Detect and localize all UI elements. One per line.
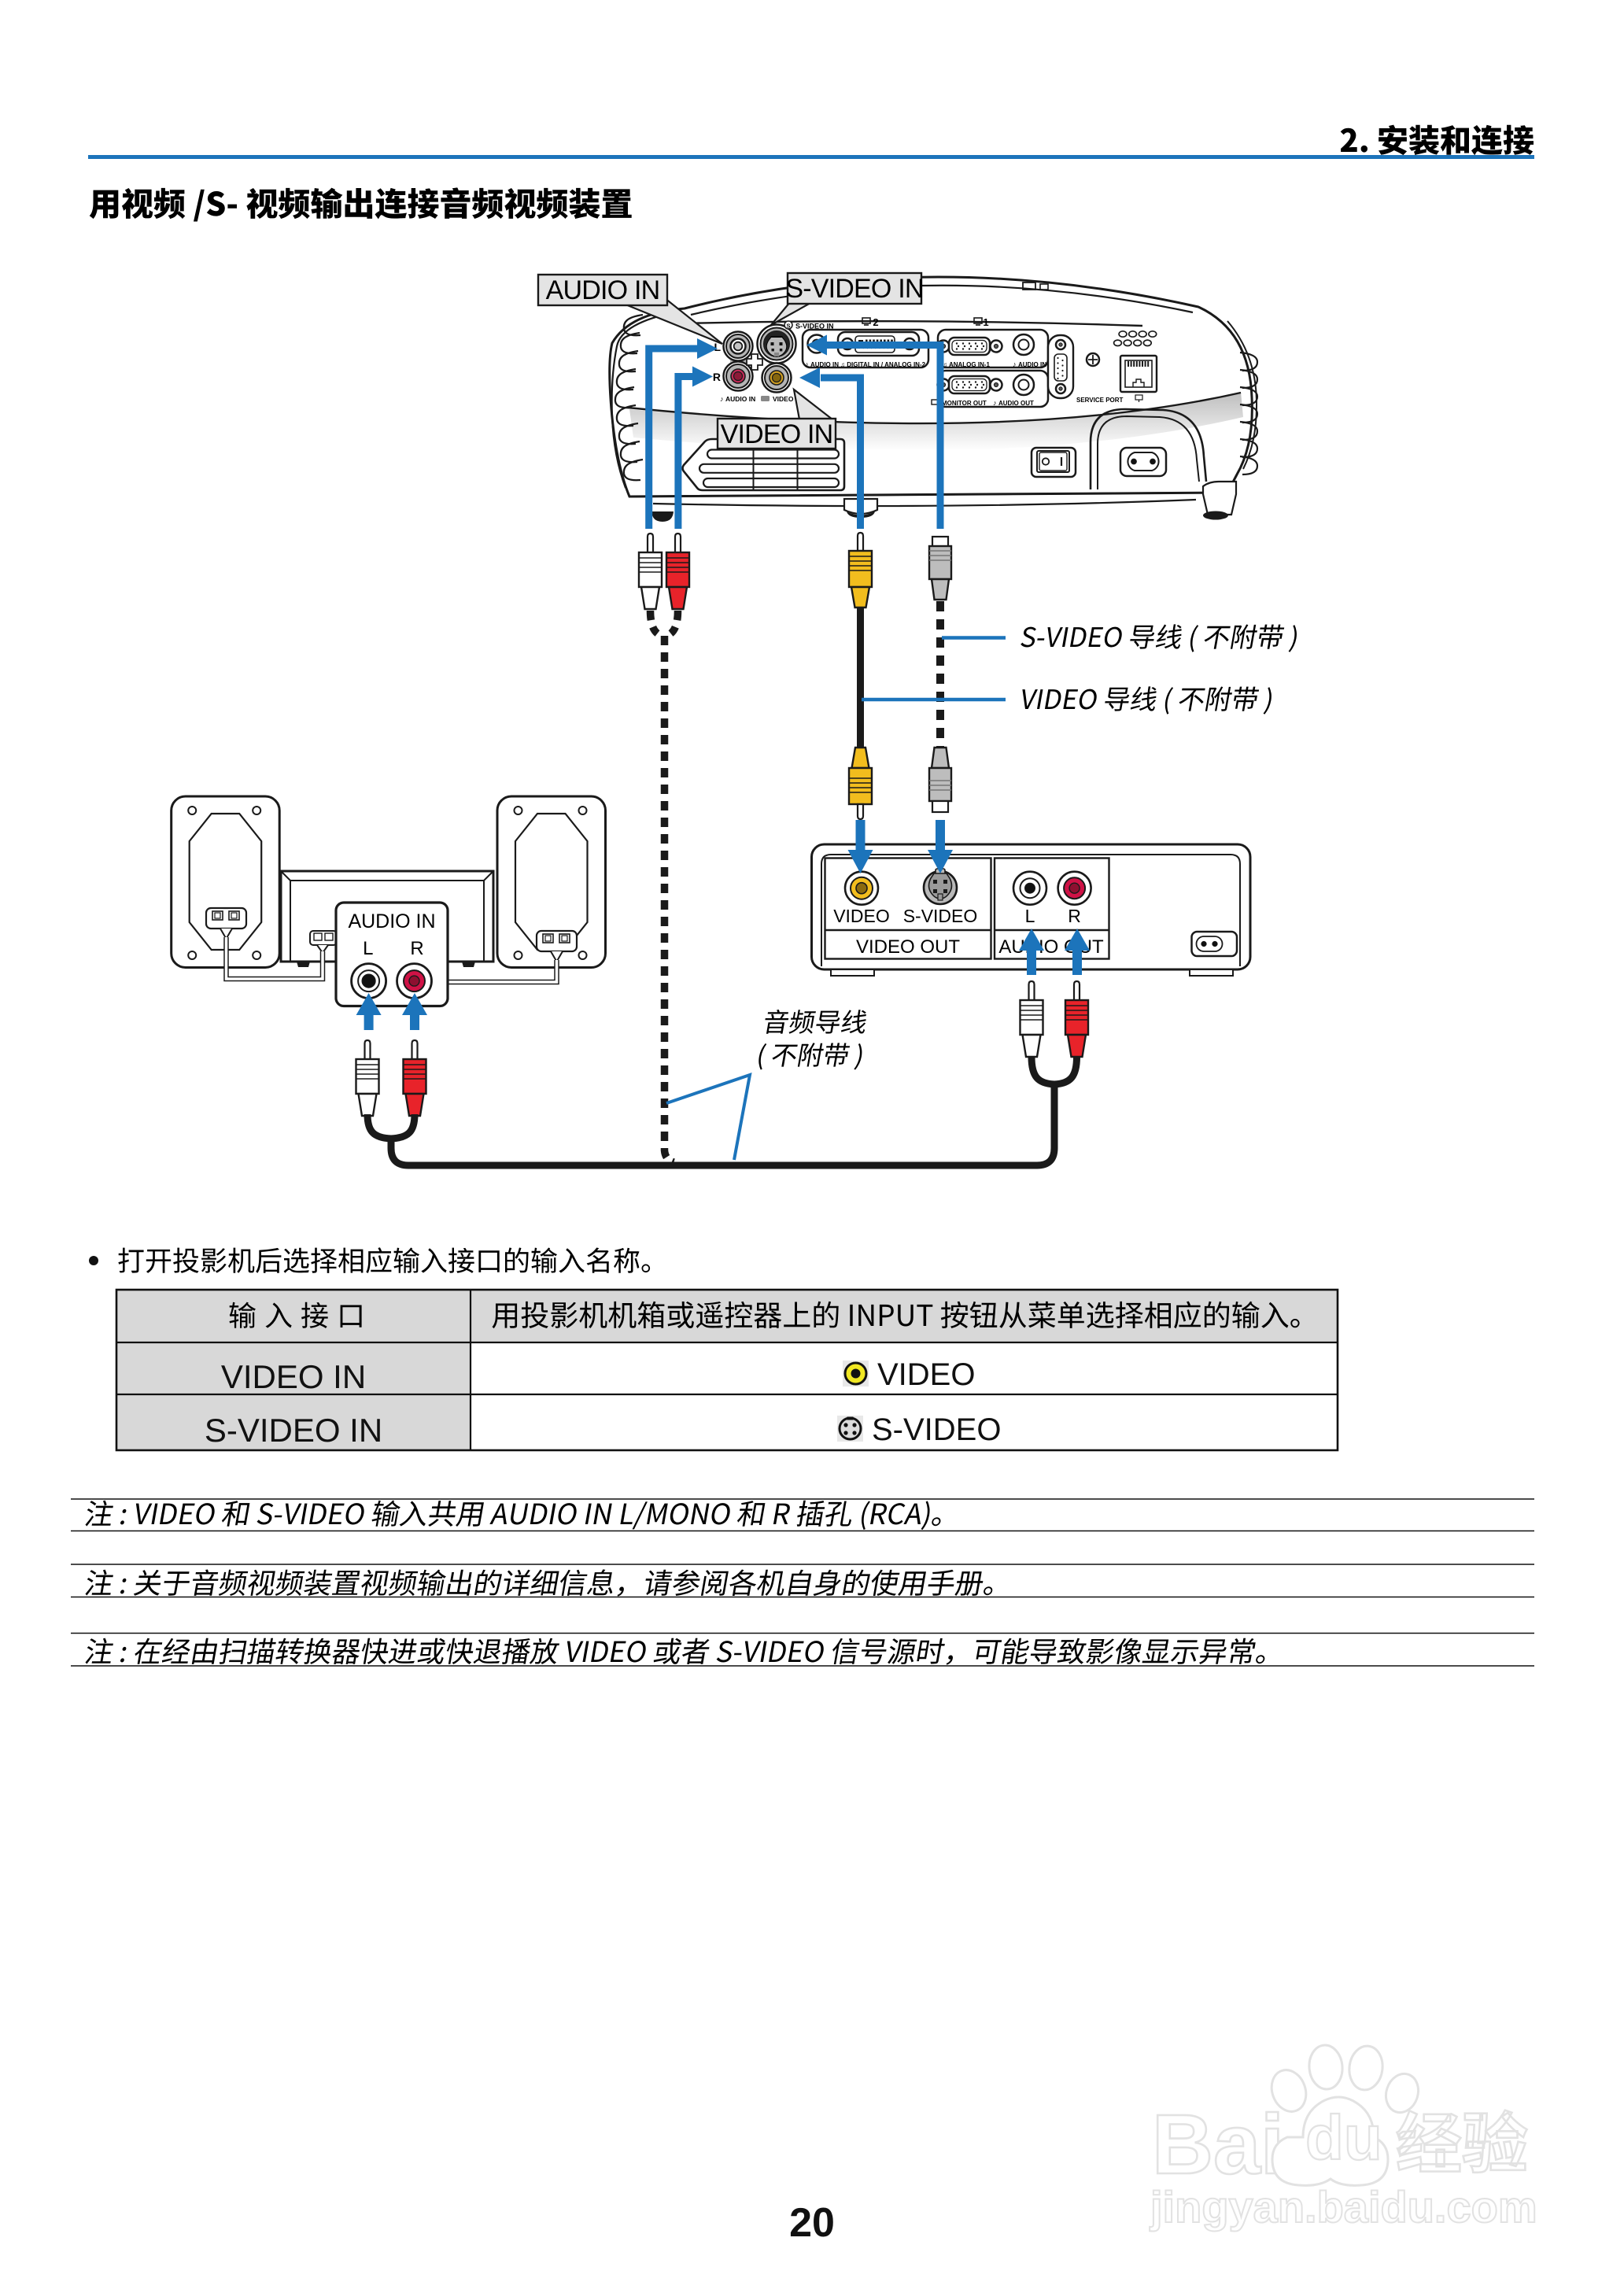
- svg-text:VIDEO: VIDEO: [877, 1357, 975, 1392]
- svg-text:S-VIDEO IN: S-VIDEO IN: [785, 274, 923, 304]
- svg-text:R: R: [1068, 906, 1081, 926]
- svg-text:R: R: [713, 371, 721, 383]
- svg-text:VIDEO OUT: VIDEO OUT: [856, 936, 960, 958]
- svg-text:♪: ♪: [720, 395, 724, 403]
- svg-text:S-VIDEO: S-VIDEO: [903, 906, 978, 926]
- svg-text:AUDIO OUT: AUDIO OUT: [998, 936, 1104, 958]
- svg-text:AUDIO IN: AUDIO IN: [348, 910, 435, 932]
- svg-text:2: 2: [873, 316, 878, 328]
- svg-text:Bai: Bai: [1152, 2096, 1284, 2191]
- svg-text:AUDIO IN: AUDIO IN: [810, 361, 839, 368]
- svg-text:L: L: [363, 938, 373, 959]
- svg-text:AUDIO OUT: AUDIO OUT: [998, 400, 1034, 407]
- svg-text:1: 1: [983, 316, 988, 328]
- svg-text:du: du: [1305, 2103, 1382, 2173]
- svg-text:♪: ♪: [993, 399, 997, 407]
- svg-text:AUDIO IN: AUDIO IN: [546, 275, 660, 305]
- svg-text:VIDEO IN: VIDEO IN: [221, 1358, 366, 1395]
- svg-text:S: S: [786, 323, 790, 330]
- svg-text:MONITOR OUT: MONITOR OUT: [942, 400, 987, 407]
- svg-text:L: L: [1025, 906, 1035, 926]
- svg-text:AUDIO IN: AUDIO IN: [725, 395, 755, 403]
- svg-text:♫ DIGITAL IN / ANALOG IN-2: ♫ DIGITAL IN / ANALOG IN-2: [840, 361, 926, 368]
- svg-text:♪: ♪: [805, 360, 809, 368]
- svg-text:♫ ANALOG IN-1: ♫ ANALOG IN-1: [943, 361, 990, 368]
- svg-text:VIDEO: VIDEO: [833, 906, 890, 926]
- svg-text:AUDIO IN: AUDIO IN: [1018, 361, 1046, 368]
- svg-text:jingyan.baidu.com: jingyan.baidu.com: [1150, 2182, 1537, 2232]
- svg-text:S-VIDEO: S-VIDEO: [872, 1412, 1001, 1447]
- svg-text:SERVICE PORT: SERVICE PORT: [1076, 397, 1124, 404]
- svg-text:♪: ♪: [1013, 360, 1017, 368]
- svg-text:S-VIDEO IN: S-VIDEO IN: [205, 1412, 382, 1449]
- svg-text:R: R: [410, 938, 423, 959]
- svg-text:20: 20: [789, 2200, 835, 2246]
- svg-text:VIDEO IN: VIDEO IN: [721, 419, 833, 449]
